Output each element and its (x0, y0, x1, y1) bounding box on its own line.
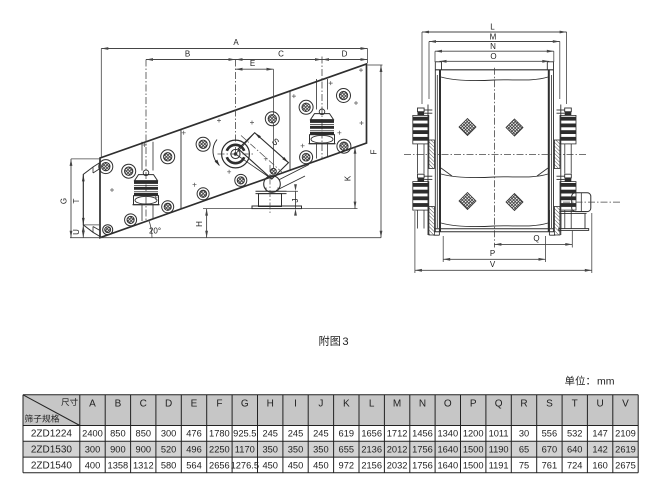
svg-text:G: G (241, 398, 249, 409)
svg-text:A: A (89, 398, 96, 409)
svg-text:972: 972 (339, 460, 355, 470)
svg-text:350: 350 (262, 445, 278, 455)
svg-text:P: P (470, 398, 477, 409)
svg-text:Q: Q (533, 234, 539, 243)
svg-text:N: N (490, 42, 496, 51)
svg-text:30: 30 (519, 429, 529, 439)
svg-text:1200: 1200 (463, 429, 484, 439)
svg-text:E: E (250, 59, 255, 68)
svg-text:T: T (572, 398, 578, 409)
svg-text:520: 520 (161, 445, 177, 455)
svg-text:147: 147 (592, 429, 608, 439)
svg-text:M: M (393, 398, 401, 409)
svg-text:850: 850 (136, 429, 152, 439)
svg-text:900: 900 (136, 445, 152, 455)
svg-text:1191: 1191 (489, 460, 509, 470)
svg-text:245: 245 (313, 429, 329, 439)
svg-text:C: C (140, 398, 147, 409)
svg-text:F: F (370, 149, 379, 154)
svg-text:761: 761 (542, 460, 558, 470)
svg-text:670: 670 (542, 445, 558, 455)
svg-text:619: 619 (339, 429, 355, 439)
svg-text:mm: mm (597, 376, 615, 388)
svg-text:640: 640 (567, 445, 583, 455)
svg-text:2656: 2656 (209, 460, 230, 470)
svg-text:3: 3 (342, 336, 348, 348)
svg-text:B: B (185, 50, 190, 59)
svg-text:1500: 1500 (463, 445, 484, 455)
svg-text:1190: 1190 (489, 445, 509, 455)
svg-text:450: 450 (313, 460, 329, 470)
svg-text:724: 724 (567, 460, 583, 470)
svg-text:1011: 1011 (489, 429, 509, 439)
svg-text:2675: 2675 (615, 460, 636, 470)
svg-text:1780: 1780 (209, 429, 230, 439)
svg-text:1170: 1170 (235, 445, 255, 455)
svg-text:K: K (344, 175, 353, 181)
svg-text:245: 245 (288, 429, 304, 439)
svg-text:B: B (115, 398, 122, 409)
svg-text:450: 450 (262, 460, 278, 470)
svg-text:2250: 2250 (209, 445, 230, 455)
svg-text:M: M (490, 32, 497, 41)
svg-text:400: 400 (85, 460, 101, 470)
svg-text:1640: 1640 (437, 445, 458, 455)
svg-text:1358: 1358 (108, 460, 129, 470)
svg-text:L: L (490, 23, 495, 32)
svg-text:20°: 20° (149, 226, 161, 235)
svg-text:2032: 2032 (387, 460, 408, 470)
svg-text:564: 564 (186, 460, 202, 470)
svg-text:I: I (294, 398, 297, 409)
svg-text:1312: 1312 (133, 460, 154, 470)
svg-text:496: 496 (186, 445, 202, 455)
svg-text:655: 655 (339, 445, 355, 455)
svg-text:450: 450 (288, 460, 304, 470)
svg-text:2ZD1540: 2ZD1540 (31, 460, 73, 471)
svg-text:580: 580 (161, 460, 177, 470)
svg-text:O: O (444, 398, 452, 409)
svg-text:P: P (490, 249, 495, 258)
svg-text:2ZD1224: 2ZD1224 (31, 429, 73, 440)
svg-text:925.5: 925.5 (233, 429, 256, 439)
svg-text:2619: 2619 (615, 445, 636, 455)
svg-text:O: O (490, 52, 496, 61)
svg-text:1456: 1456 (412, 429, 433, 439)
svg-text:75: 75 (519, 460, 529, 470)
svg-text:J: J (318, 398, 323, 409)
svg-text:1756: 1756 (412, 445, 433, 455)
svg-text:2109: 2109 (615, 429, 636, 439)
svg-text:2156: 2156 (361, 460, 382, 470)
svg-text:T: T (72, 198, 81, 203)
svg-text:1500: 1500 (463, 460, 484, 470)
svg-text:300: 300 (161, 429, 177, 439)
svg-text:H: H (195, 221, 204, 227)
svg-text:L: L (369, 398, 375, 409)
svg-text:245: 245 (262, 429, 278, 439)
svg-text:1340: 1340 (437, 429, 458, 439)
svg-text:U: U (596, 398, 603, 409)
svg-text:E: E (191, 398, 198, 409)
svg-text:J: J (291, 199, 300, 203)
svg-text:556: 556 (542, 429, 558, 439)
svg-text:F: F (216, 398, 222, 409)
svg-text:N: N (419, 398, 426, 409)
svg-text:142: 142 (592, 445, 608, 455)
svg-text:R: R (520, 398, 527, 409)
svg-text:V: V (490, 260, 496, 269)
svg-text:K: K (343, 398, 350, 409)
svg-text:S: S (546, 398, 553, 409)
svg-text:350: 350 (313, 445, 329, 455)
svg-text:1756: 1756 (412, 460, 433, 470)
svg-text:1712: 1712 (387, 429, 408, 439)
svg-text:300: 300 (85, 445, 101, 455)
svg-text:D: D (342, 50, 348, 59)
svg-text:532: 532 (567, 429, 583, 439)
svg-text:350: 350 (288, 445, 304, 455)
svg-text:D: D (165, 398, 172, 409)
svg-text:850: 850 (110, 429, 126, 439)
svg-text:2136: 2136 (361, 445, 382, 455)
svg-text:A: A (233, 38, 239, 47)
svg-text:2400: 2400 (82, 429, 103, 439)
svg-text:1640: 1640 (437, 460, 458, 470)
svg-text:476: 476 (186, 429, 202, 439)
svg-text:1656: 1656 (361, 429, 382, 439)
svg-text:2012: 2012 (387, 445, 408, 455)
svg-text:H: H (267, 398, 274, 409)
svg-text:Q: Q (495, 398, 503, 409)
svg-text:C: C (278, 50, 284, 59)
svg-text:160: 160 (592, 460, 608, 470)
svg-text:U: U (72, 229, 81, 235)
svg-text:1276.5: 1276.5 (231, 460, 259, 470)
svg-text:V: V (622, 398, 629, 409)
svg-text:900: 900 (110, 445, 126, 455)
svg-text:65: 65 (519, 445, 529, 455)
svg-text:2ZD1530: 2ZD1530 (31, 445, 73, 456)
svg-text:G: G (60, 198, 69, 204)
